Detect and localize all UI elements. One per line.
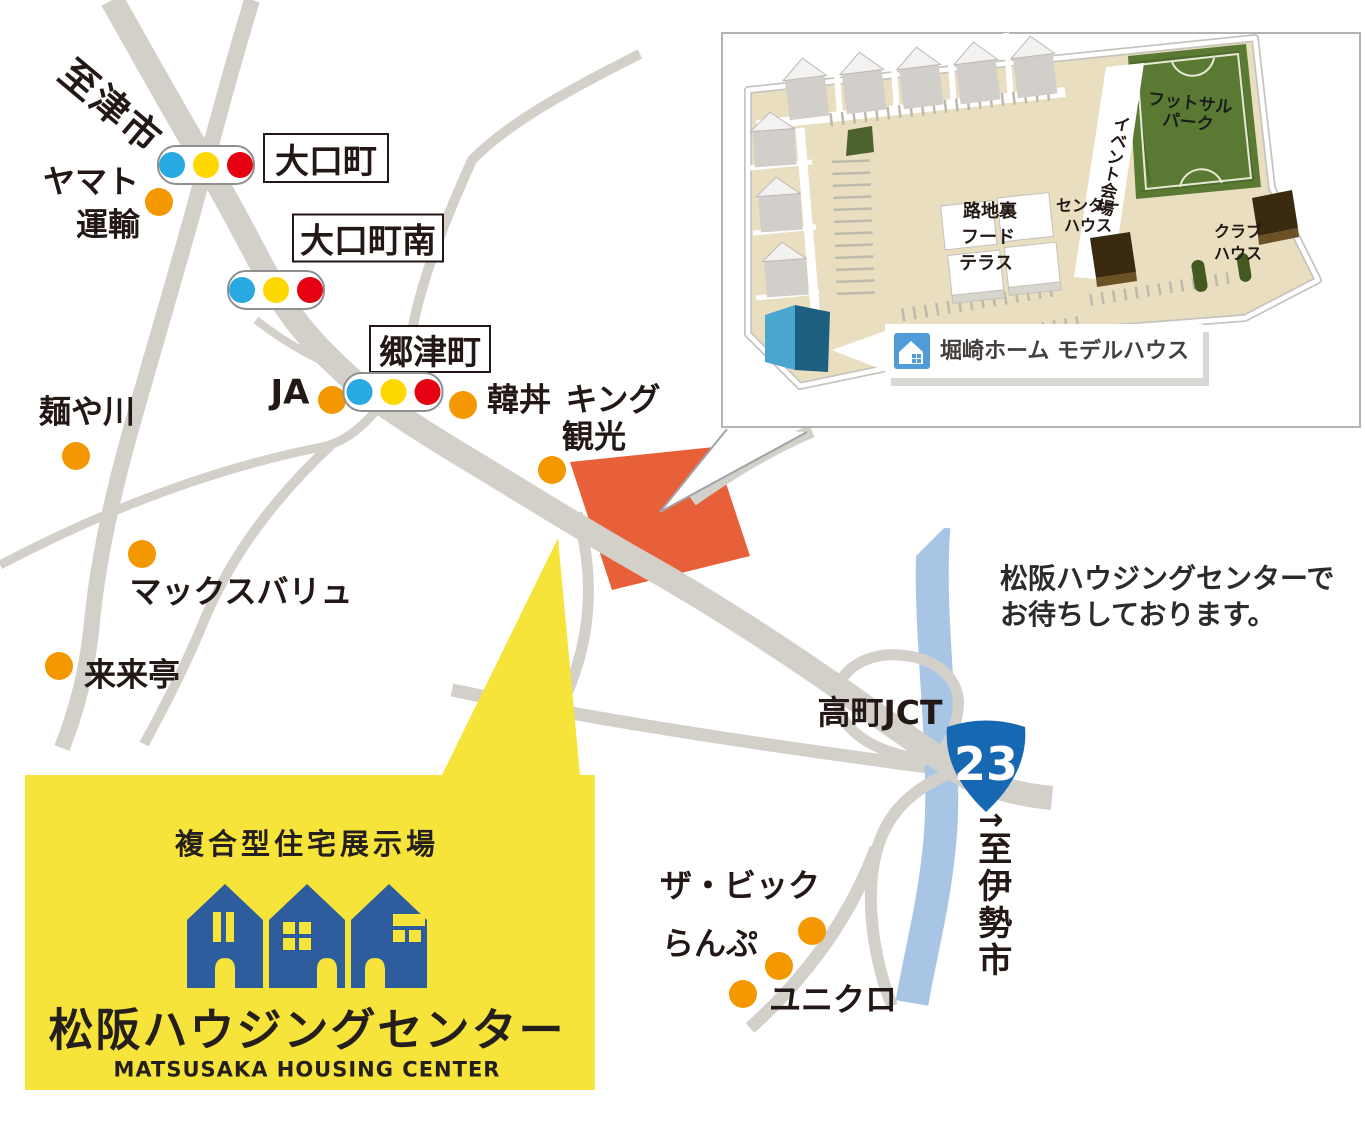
food-terrace-label-line2: フード: [961, 228, 1015, 248]
rairaitei-label: 来来亭: [84, 657, 180, 692]
uniqlo-label: ユニクロ: [769, 982, 897, 1017]
access-map: 23: [0, 0, 1365, 1134]
food-terrace-label-line1: 路地裏: [963, 202, 1017, 222]
takamachi-jct-label: 高町JCT: [817, 695, 942, 731]
yamato-label-line2: 運輸: [76, 207, 140, 242]
the-big-label: ザ・ビック: [660, 868, 820, 903]
dot-uniqlo: [729, 980, 757, 1008]
dot-king-kanko: [538, 456, 566, 484]
center-box-title: 松阪ハウジングセンター: [48, 1005, 565, 1055]
menyakawa-label: 麺や川: [39, 394, 135, 429]
center-house-label-line2: ハウス: [1064, 217, 1112, 235]
signal-red-light: [414, 379, 440, 405]
intersection-sign-text: 郷津町: [379, 325, 481, 374]
traffic-light-gozucho: [343, 372, 444, 412]
center-house-label-line1: センター: [1056, 197, 1120, 215]
signal-blue-light: [229, 277, 255, 303]
intersection-sign-gozucho: 郷津町: [369, 325, 491, 373]
intersection-sign-oguchicho-minami: 大口町南: [292, 214, 444, 263]
message-line1: 松阪ハウジングセンターで: [1000, 557, 1334, 597]
food-terrace-label-line3: テラス: [959, 254, 1013, 274]
dot-the-big: [798, 917, 826, 945]
maxvalu-label: マックスバリュ: [129, 574, 352, 609]
inset-map: [722, 33, 1360, 427]
traffic-light-oguchicho-minami: [227, 270, 325, 310]
signal-yellow-light: [263, 277, 289, 303]
to-ise-city-label: 至伊勢市: [972, 831, 1009, 979]
dot-kandon: [449, 391, 477, 419]
signal-blue-light: [159, 152, 185, 178]
dot-lamp: [765, 952, 793, 980]
message-line2: お待ちしております。: [1000, 593, 1276, 633]
center-box-tagline: 複合型住宅展示場: [175, 829, 439, 861]
housing-center-houses-icon: [187, 884, 427, 988]
signal-red-light: [297, 277, 323, 303]
kandon-label: 韓丼: [487, 382, 551, 417]
dot-menyakawa: [62, 442, 90, 470]
king-kanko-label-line1: キング: [565, 382, 660, 417]
traffic-light-oguchicho: [157, 145, 255, 185]
intersection-sign-text: 大口町南: [300, 214, 436, 263]
intersection-sign-text: 大口町: [275, 134, 377, 183]
signal-yellow-light: [380, 379, 406, 405]
ja-label: JA: [271, 374, 310, 411]
model-house-label: 堀崎ホーム モデルハウス: [940, 340, 1189, 364]
dot-maxvalu: [128, 540, 156, 568]
club-house-label-line1: クラブ: [1214, 223, 1262, 241]
green-patch: [846, 126, 874, 156]
signal-red-light: [227, 152, 253, 178]
signal-blue-light: [346, 379, 372, 405]
signal-yellow-light: [193, 152, 219, 178]
model-house-highlighted: [765, 305, 830, 372]
club-house-label-line2: ハウス: [1214, 245, 1262, 263]
center-house-building: [1090, 232, 1137, 287]
yamato-label-line1: ヤマト: [43, 164, 139, 199]
center-box-subtitle: MATSUSAKA HOUSING CENTER: [114, 1058, 501, 1081]
dot-yamato: [145, 188, 173, 216]
king-kanko-label-line2: 観光: [562, 419, 626, 454]
route-number: 23: [954, 737, 1018, 791]
lamp-label: らんぷ: [662, 926, 758, 961]
dot-rairaitei: [45, 652, 73, 680]
intersection-sign-oguchicho: 大口町: [263, 133, 389, 183]
